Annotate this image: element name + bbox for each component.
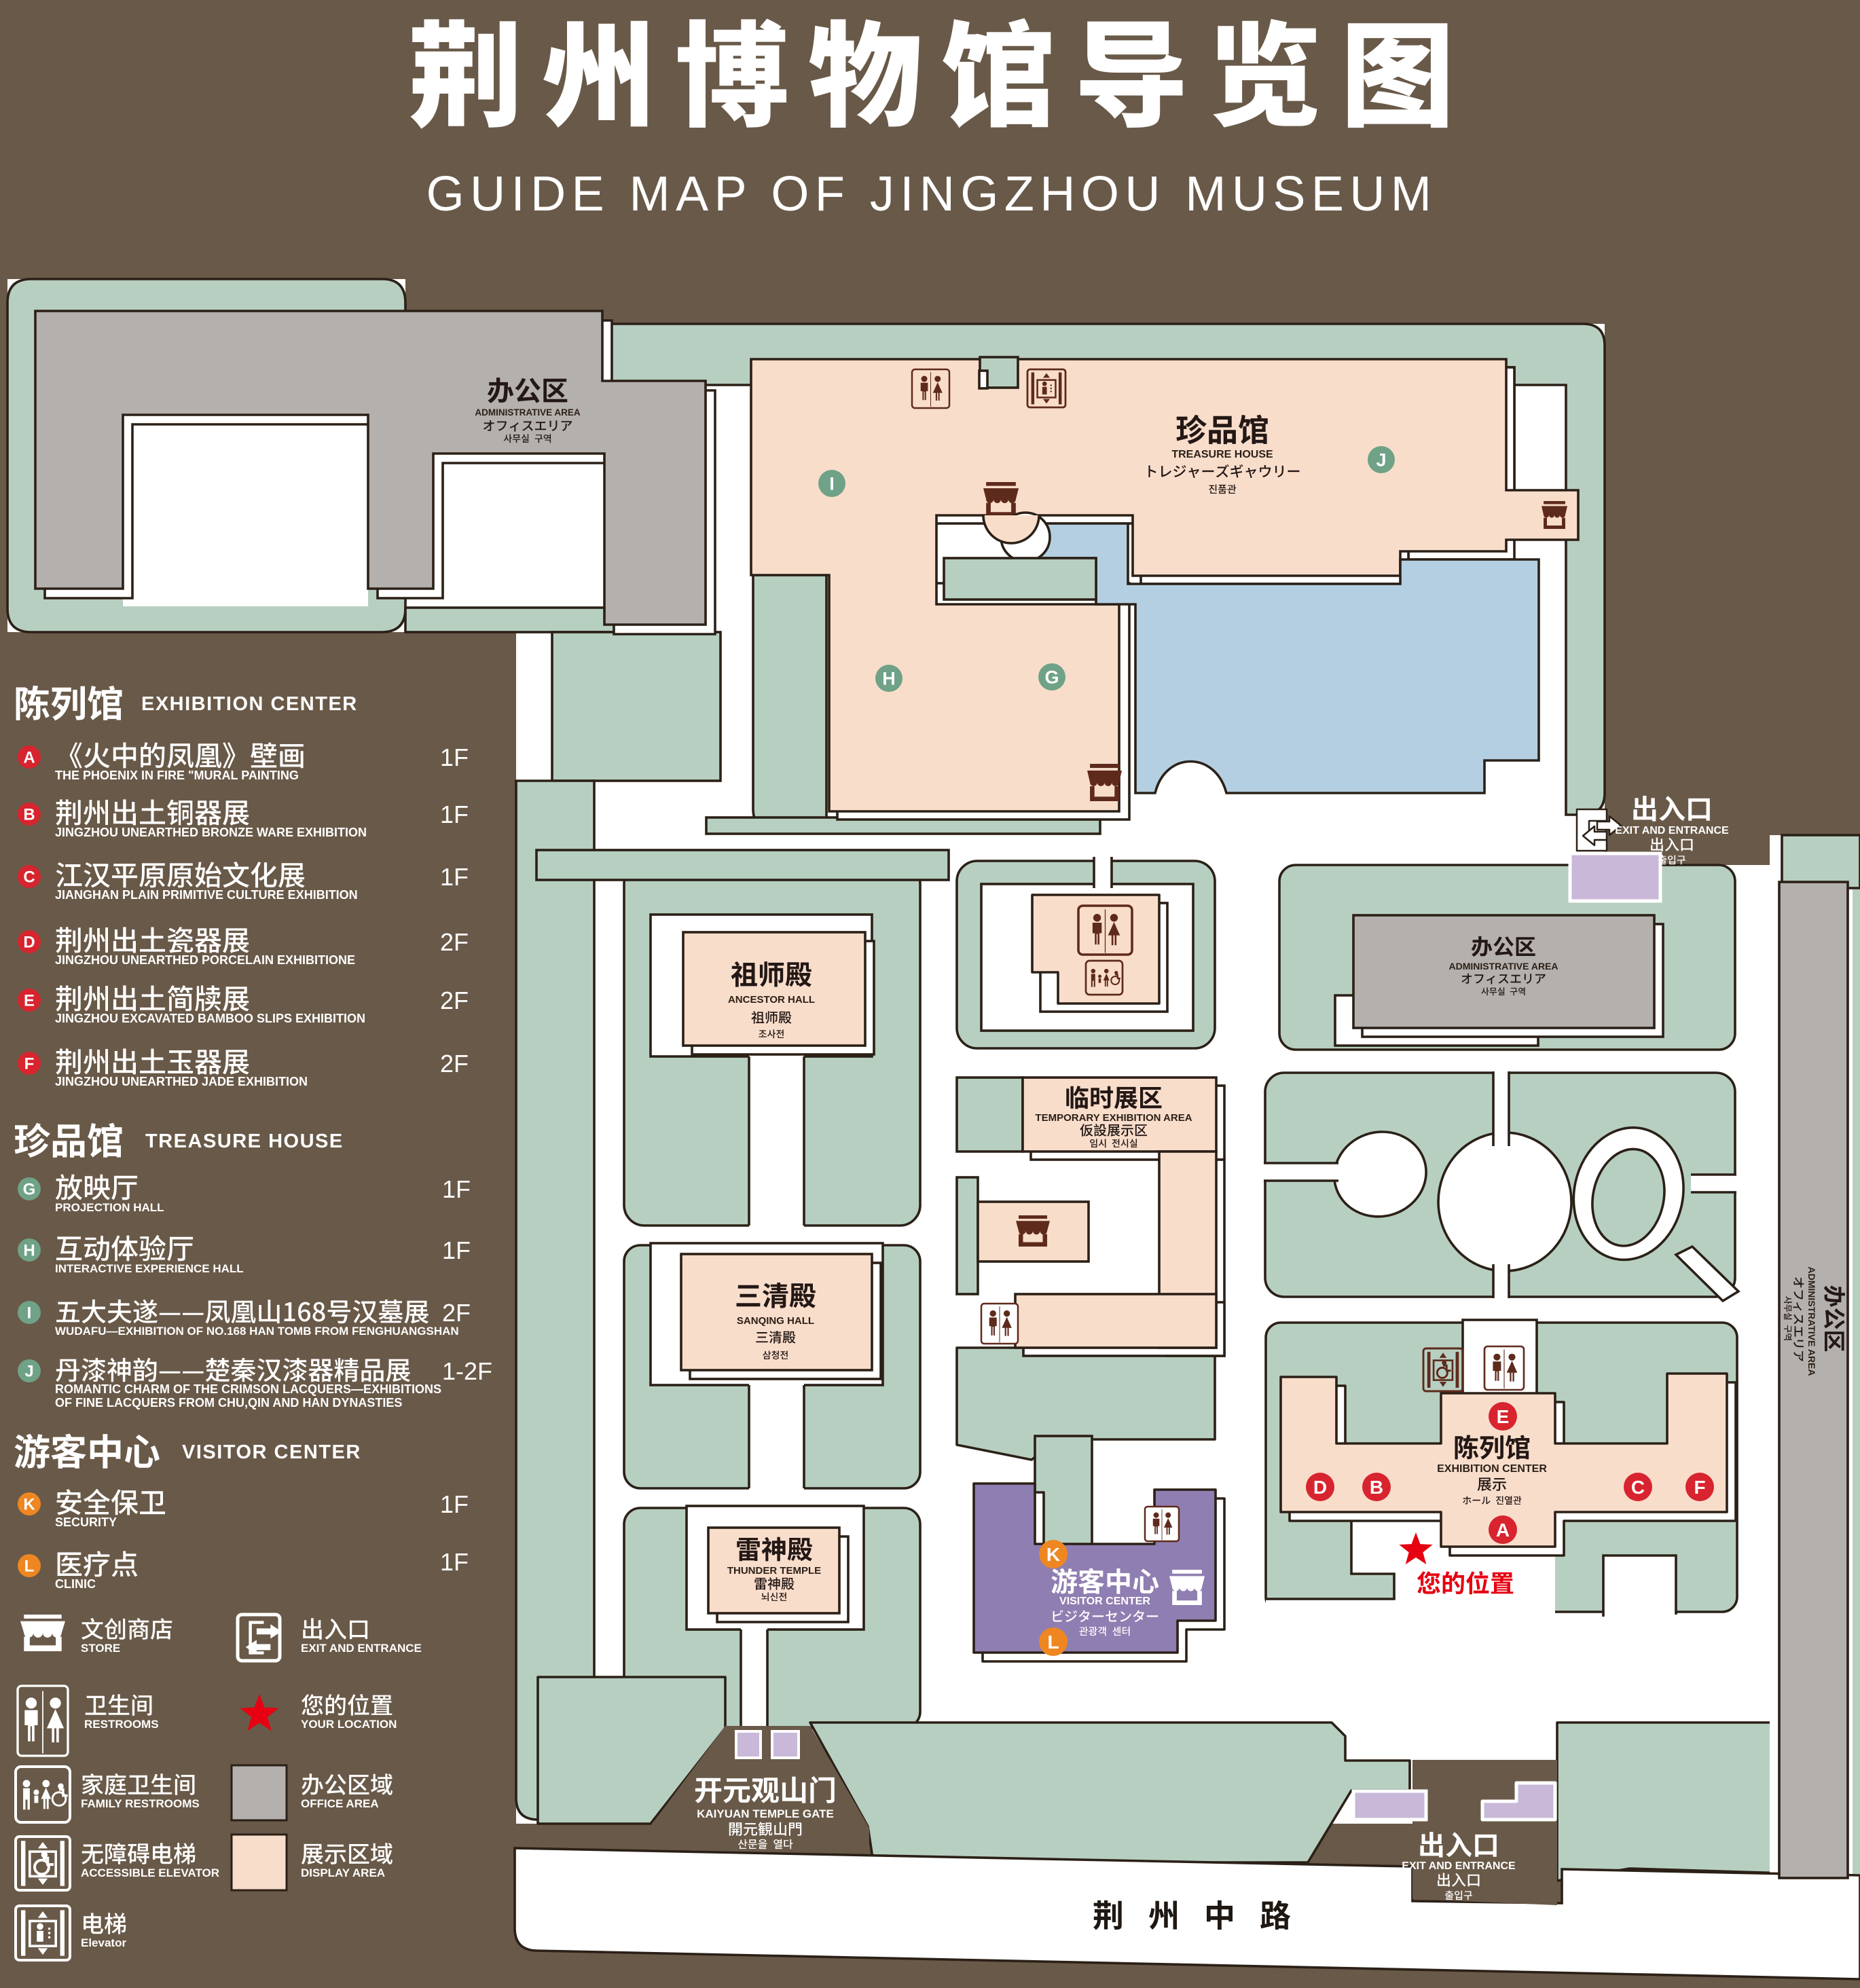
- svg-text:TREASURE HOUSE: TREASURE HOUSE: [145, 1130, 344, 1152]
- svg-text:D: D: [1313, 1477, 1327, 1498]
- svg-text:D: D: [23, 934, 35, 952]
- svg-text:G: G: [23, 1181, 36, 1199]
- svg-text:K: K: [1046, 1544, 1060, 1565]
- svg-text:B: B: [1370, 1477, 1383, 1498]
- svg-text:Elevator: Elevator: [81, 1936, 126, 1949]
- svg-text:ACCESSIBLE ELEVATOR: ACCESSIBLE ELEVATOR: [81, 1866, 219, 1879]
- svg-text:L: L: [24, 1558, 35, 1576]
- svg-text:1F: 1F: [442, 1236, 471, 1264]
- svg-text:I: I: [27, 1304, 32, 1323]
- svg-text:2F: 2F: [440, 1050, 469, 1078]
- svg-text:SECURITY: SECURITY: [55, 1515, 117, 1529]
- svg-text:1-2F: 1-2F: [442, 1357, 492, 1385]
- svg-text:JINGZHOU UNEARTHED JADE EXHIBI: JINGZHOU UNEARTHED JADE EXHIBITION: [55, 1075, 308, 1088]
- svg-text:JINGZHOU EXCAVATED BAMBOO SLIP: JINGZHOU EXCAVATED BAMBOO SLIPS EXHIBITI…: [55, 1012, 365, 1025]
- svg-text:ADMINISTRATIVE AREA: ADMINISTRATIVE AREA: [475, 407, 581, 418]
- svg-text:ADMINISTRATIVE AREA: ADMINISTRATIVE AREA: [1806, 1267, 1817, 1376]
- svg-text:H: H: [882, 669, 896, 689]
- svg-text:ROMANTIC CHARM OF THE CRIMSON: ROMANTIC CHARM OF THE CRIMSON LACQUERS—E…: [55, 1382, 441, 1396]
- svg-text:CLINIC: CLINIC: [55, 1577, 96, 1591]
- svg-text:C: C: [23, 868, 35, 887]
- svg-text:1F: 1F: [440, 800, 469, 828]
- svg-text:EXIT AND ENTRANCE: EXIT AND ENTRANCE: [301, 1642, 422, 1655]
- svg-text:DISPLAY AREA: DISPLAY AREA: [301, 1866, 385, 1879]
- svg-text:YOUR LOCATION: YOUR LOCATION: [301, 1718, 397, 1731]
- svg-text:C: C: [1631, 1477, 1645, 1498]
- svg-text:FAMILY RESTROOMS: FAMILY RESTROOMS: [81, 1797, 200, 1810]
- svg-text:INTERACTIVE EXPERIENCE HALL: INTERACTIVE EXPERIENCE HALL: [55, 1262, 244, 1275]
- svg-text:SANQING HALL: SANQING HALL: [737, 1315, 814, 1327]
- svg-text:PROJECTION HALL: PROJECTION HALL: [55, 1201, 164, 1214]
- svg-text:JINGZHOU UNEARTHED BRONZE WARE: JINGZHOU UNEARTHED BRONZE WARE EXHIBITIO…: [55, 826, 367, 839]
- svg-text:VISITOR CENTER: VISITOR CENTER: [1059, 1596, 1150, 1607]
- svg-text:L: L: [1047, 1632, 1059, 1653]
- svg-text:F: F: [24, 1055, 35, 1073]
- svg-text:STORE: STORE: [81, 1642, 120, 1655]
- svg-text:OFFICE AREA: OFFICE AREA: [301, 1797, 379, 1810]
- svg-text:H: H: [23, 1242, 35, 1260]
- svg-text:EXHIBITION CENTER: EXHIBITION CENTER: [1437, 1463, 1547, 1475]
- svg-text:EXIT AND ENTRANCE: EXIT AND ENTRANCE: [1615, 825, 1729, 836]
- svg-text:J: J: [1376, 450, 1386, 471]
- svg-text:A: A: [1496, 1520, 1510, 1541]
- svg-text:A: A: [23, 749, 35, 767]
- svg-text:1F: 1F: [440, 1490, 469, 1518]
- svg-text:THE PHOENIX IN FIRE "MURAL PAI: THE PHOENIX IN FIRE "MURAL PAINTING: [55, 769, 299, 782]
- svg-text:1F: 1F: [440, 743, 469, 771]
- svg-text:JINGZHOU UNEARTHED PORCELAIN E: JINGZHOU UNEARTHED PORCELAIN EXHIBITIONE: [55, 953, 355, 967]
- svg-text:TEMPORARY EXHIBITION AREA: TEMPORARY EXHIBITION AREA: [1035, 1112, 1192, 1124]
- svg-text:ANCESTOR HALL: ANCESTOR HALL: [728, 994, 815, 1006]
- svg-text:2F: 2F: [440, 928, 469, 956]
- svg-text:TREASURE HOUSE: TREASURE HOUSE: [1171, 449, 1273, 460]
- svg-text:ADMINISTRATIVE AREA: ADMINISTRATIVE AREA: [1449, 961, 1558, 972]
- svg-text:E: E: [24, 992, 35, 1010]
- svg-text:I: I: [829, 474, 835, 494]
- svg-text:GUIDE MAP OF JINGZHOU MUSEUM: GUIDE MAP OF JINGZHOU MUSEUM: [426, 167, 1438, 221]
- svg-text:1F: 1F: [442, 1175, 471, 1203]
- svg-text:E: E: [1497, 1406, 1510, 1427]
- svg-text:F: F: [1694, 1477, 1705, 1498]
- svg-text:VISITOR CENTER: VISITOR CENTER: [182, 1441, 361, 1463]
- svg-text:G: G: [1044, 667, 1059, 688]
- svg-text:1F: 1F: [440, 863, 469, 891]
- svg-text:EXIT AND ENTRANCE: EXIT AND ENTRANCE: [1402, 1860, 1516, 1872]
- svg-text:K: K: [23, 1496, 35, 1514]
- svg-text:JIANGHAN PLAIN PRIMITIVE CULTU: JIANGHAN PLAIN PRIMITIVE CULTURE EXHIBIT…: [55, 888, 358, 902]
- svg-text:2F: 2F: [440, 987, 469, 1014]
- svg-text:THUNDER TEMPLE: THUNDER TEMPLE: [727, 1565, 821, 1577]
- svg-text:2F: 2F: [442, 1299, 471, 1327]
- svg-text:WUDAFU—EXHIBITION OF NO.168 HA: WUDAFU—EXHIBITION OF NO.168 HAN TOMB FRO…: [55, 1325, 459, 1338]
- svg-text:EXHIBITION CENTER: EXHIBITION CENTER: [141, 693, 358, 715]
- svg-text:J: J: [24, 1363, 33, 1381]
- svg-text:1F: 1F: [440, 1548, 469, 1576]
- svg-text:OF FINE LACQUERS FROM CHU,QIN: OF FINE LACQUERS FROM CHU,QIN AND HAN DY…: [55, 1396, 402, 1410]
- svg-text:B: B: [23, 806, 35, 824]
- svg-text:KAIYUAN TEMPLE GATE: KAIYUAN TEMPLE GATE: [697, 1807, 834, 1820]
- svg-text:RESTROOMS: RESTROOMS: [84, 1718, 159, 1731]
